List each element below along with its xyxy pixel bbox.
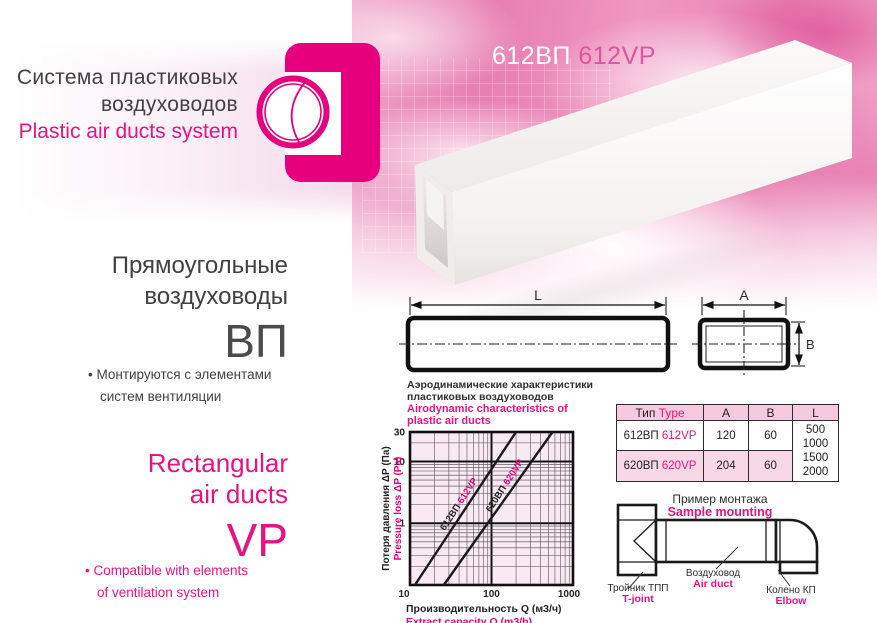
product-code-ru: 612ВП bbox=[492, 42, 571, 70]
product-code: 612ВП 612VP bbox=[492, 42, 656, 71]
code-en: 612VP bbox=[662, 430, 697, 442]
air-duct-label-en: Air duct bbox=[671, 579, 755, 590]
table-cell-type-620: 620ВП 620VP bbox=[617, 451, 704, 482]
tjoint-label: Тройник ТПП T-joint bbox=[596, 583, 680, 605]
brand-title-ru-line2: воздуховодов bbox=[0, 91, 238, 118]
table-cell-a-620: 204 bbox=[704, 451, 749, 482]
code-ru: 620ВП bbox=[624, 460, 659, 472]
intro-en-heading2: air ducts bbox=[0, 479, 288, 510]
intro-en-block: Rectangular air ducts VP bbox=[0, 448, 288, 568]
table-cell-b-612: 60 bbox=[749, 421, 793, 451]
table-cell-l-values: 500 1000 1500 2000 bbox=[793, 421, 839, 482]
table-cell-a-612: 120 bbox=[704, 421, 749, 451]
duct-logo-icon bbox=[250, 38, 390, 188]
table-header-l: L bbox=[793, 405, 839, 421]
svg-text:Extract capacity Q (m3/h): Extract capacity Q (m3/h) bbox=[406, 616, 532, 623]
svg-text:30: 30 bbox=[394, 428, 406, 439]
chart-title-ru-line1: Аэродинамические характеристики bbox=[407, 379, 597, 391]
air-duct-label: Воздуховод Air duct bbox=[671, 568, 755, 590]
table-cell-b-620: 60 bbox=[749, 451, 793, 482]
l-value: 500 bbox=[793, 423, 838, 437]
svg-text:Pressure loss ΔP (Pa): Pressure loss ΔP (Pa) bbox=[393, 457, 404, 561]
intro-ru-bullet: • Монтируются с элементами систем вентил… bbox=[88, 364, 310, 408]
svg-text:100: 100 bbox=[483, 589, 500, 600]
intro-en-heading1: Rectangular bbox=[0, 448, 288, 479]
product-code-en: 612VP bbox=[578, 42, 656, 70]
l-value: 1500 bbox=[793, 451, 838, 465]
intro-ru-code: ВП bbox=[0, 314, 288, 368]
intro-en-bullet-line2: of ventilation system bbox=[97, 585, 219, 600]
svg-text:Производительность Q (м3/ч): Производительность Q (м3/ч) bbox=[406, 603, 562, 615]
intro-en-bullet-line1: • Compatible with elements bbox=[85, 563, 248, 578]
dimension-label-width: A bbox=[739, 288, 749, 303]
code-ru: 612ВП bbox=[624, 430, 659, 442]
intro-en-bullet: • Compatible with elements of ventilatio… bbox=[85, 560, 307, 604]
table-header-row: Тип Type A B L bbox=[617, 405, 839, 421]
svg-text:Потеря давления ΔP (Па): Потеря давления ΔP (Па) bbox=[381, 446, 392, 570]
code-en: 620VP bbox=[662, 460, 697, 472]
table-header-type: Тип Type bbox=[617, 405, 704, 421]
l-value: 1000 bbox=[793, 437, 838, 451]
table-header-type-en: Type bbox=[659, 406, 685, 420]
intro-ru-heading1: Прямоугольные bbox=[0, 250, 288, 281]
intro-ru-heading2: воздуховоды bbox=[0, 281, 288, 312]
table-header-b: B bbox=[749, 405, 793, 421]
dimension-diagram: L A B bbox=[395, 288, 865, 388]
l-value: 2000 bbox=[793, 465, 838, 479]
aerodynamic-chart: 612ВП 612VP620ВП 620VP30101101001000Прои… bbox=[378, 418, 593, 620]
brand-title-en: Plastic air ducts system bbox=[0, 118, 238, 145]
table-row: 612ВП 612VP 120 60 500 1000 1500 2000 bbox=[617, 421, 839, 451]
dimension-label-height: B bbox=[806, 337, 815, 352]
elbow-label-en: Elbow bbox=[749, 596, 833, 607]
brand-title-ru-line1: Система пластиковых bbox=[0, 64, 238, 91]
brand-title: Система пластиковых воздуховодов Plastic… bbox=[0, 64, 238, 145]
intro-ru-block: Прямоугольные воздуховоды ВП bbox=[0, 250, 288, 368]
dimension-label-length: L bbox=[534, 288, 542, 303]
spec-table: Тип Type A B L 612ВП 612VP 120 60 500 10… bbox=[616, 404, 839, 482]
table-cell-type-612: 612ВП 612VP bbox=[617, 421, 704, 451]
table-header-type-ru: Тип bbox=[635, 406, 655, 420]
chart-title-en-line1: Airodynamic characteristics of bbox=[407, 403, 597, 415]
svg-text:1000: 1000 bbox=[558, 589, 581, 600]
intro-ru-bullet-line1: • Монтируются с элементами bbox=[88, 367, 271, 382]
elbow-label: Колено КП Elbow bbox=[749, 585, 833, 607]
svg-text:10: 10 bbox=[398, 589, 410, 600]
intro-ru-bullet-line2: систем вентиляции bbox=[100, 389, 221, 404]
table-header-a: A bbox=[704, 405, 749, 421]
tjoint-label-en: T-joint bbox=[596, 594, 680, 605]
catalog-page: Система пластиковых воздуховодов Plastic… bbox=[0, 0, 877, 623]
chart-title-ru-line2: пластиковых воздуховодов bbox=[407, 391, 597, 403]
